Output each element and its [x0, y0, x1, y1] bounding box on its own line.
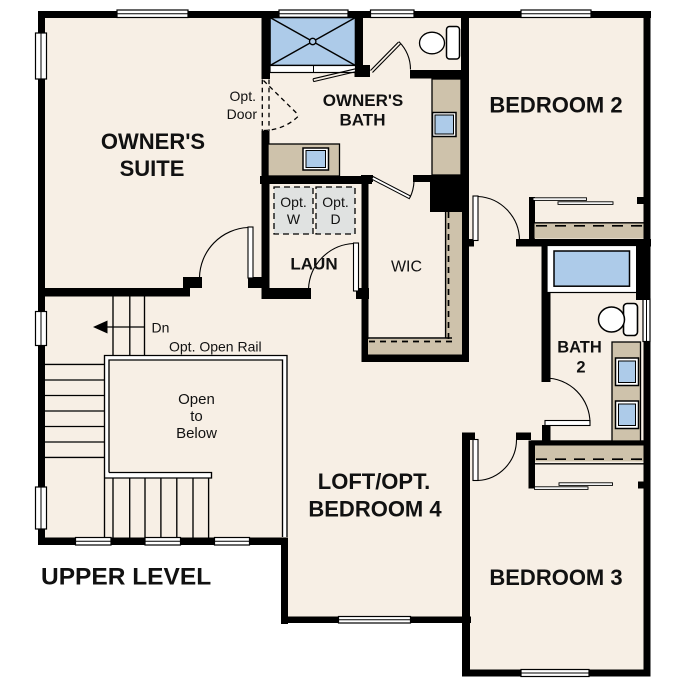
svg-text:WIC: WIC	[391, 259, 422, 276]
svg-text:BATH: BATH	[340, 111, 386, 130]
svg-text:Opt. Open Rail: Opt. Open Rail	[169, 339, 262, 355]
svg-text:SUITE: SUITE	[120, 156, 185, 181]
svg-text:OWNER'S: OWNER'S	[101, 129, 205, 154]
svg-text:Below: Below	[176, 425, 217, 442]
svg-text:BEDROOM 2: BEDROOM 2	[489, 93, 622, 118]
svg-text:BEDROOM 4: BEDROOM 4	[308, 497, 442, 522]
svg-text:2: 2	[576, 359, 585, 377]
svg-text:OWNER'S: OWNER'S	[323, 91, 404, 110]
svg-text:BATH: BATH	[557, 338, 602, 356]
svg-text:Dn: Dn	[152, 320, 170, 336]
svg-text:LAUN: LAUN	[290, 255, 337, 274]
svg-text:UPPER LEVEL: UPPER LEVEL	[41, 564, 211, 591]
svg-text:Door: Door	[227, 106, 258, 122]
svg-text:Open: Open	[178, 391, 215, 408]
svg-text:Opt.: Opt.	[322, 194, 348, 210]
svg-text:to: to	[190, 408, 203, 425]
svg-text:BEDROOM 3: BEDROOM 3	[489, 565, 622, 590]
svg-text:Opt.: Opt.	[280, 194, 306, 210]
svg-text:LOFT/OPT.: LOFT/OPT.	[318, 469, 430, 494]
svg-text:Opt.: Opt.	[230, 88, 256, 104]
svg-text:W: W	[287, 211, 301, 227]
svg-text:D: D	[330, 211, 340, 227]
